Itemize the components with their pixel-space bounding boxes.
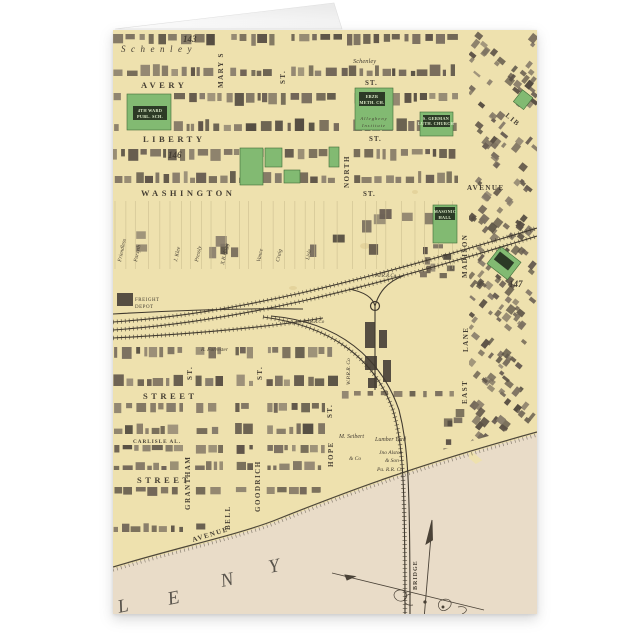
building (315, 378, 324, 386)
building (127, 379, 134, 387)
building (168, 347, 175, 354)
building (363, 34, 370, 44)
building (267, 379, 273, 386)
building (249, 445, 252, 449)
district-label: Schenley (121, 44, 197, 54)
building (220, 176, 227, 183)
building (263, 69, 272, 76)
building (349, 66, 356, 77)
building (161, 466, 166, 470)
building (393, 93, 400, 106)
building (447, 171, 452, 183)
building (315, 71, 321, 76)
building (168, 425, 179, 434)
building (147, 466, 152, 470)
building (449, 149, 456, 159)
building (191, 124, 194, 131)
building (137, 424, 143, 434)
building (240, 34, 247, 41)
seibert-label: M. Seibert (338, 434, 364, 440)
building (152, 526, 157, 533)
building (299, 34, 309, 41)
street-mary: MARY S (217, 52, 225, 88)
building (394, 391, 403, 397)
building (423, 247, 428, 254)
ward-school-label: PUBL. SCH. (137, 114, 163, 119)
building (113, 374, 123, 386)
building (268, 347, 271, 353)
park-block (329, 147, 339, 167)
building (284, 380, 290, 387)
building (392, 34, 400, 40)
building (298, 149, 305, 159)
building (158, 403, 163, 409)
building (174, 121, 183, 131)
building (236, 487, 246, 492)
building (196, 376, 202, 386)
building (246, 93, 255, 103)
building (320, 34, 330, 40)
building (113, 34, 123, 43)
building (196, 445, 206, 454)
building (218, 445, 223, 453)
building (141, 65, 151, 76)
building (240, 347, 246, 353)
building (406, 177, 414, 183)
building (288, 123, 291, 131)
building (309, 149, 318, 158)
building (163, 149, 166, 158)
wprr-label: W.P.R.R. Co (346, 358, 352, 385)
building (114, 466, 119, 470)
building (435, 391, 442, 396)
building (240, 70, 247, 77)
building (423, 391, 427, 397)
building (136, 347, 140, 354)
seibert-label: & Co (349, 456, 361, 462)
building (212, 427, 218, 434)
building (334, 123, 339, 131)
building (249, 381, 253, 386)
building (143, 445, 151, 451)
building (412, 34, 420, 44)
building (267, 445, 273, 451)
building (145, 176, 153, 183)
building (141, 149, 147, 155)
building (241, 403, 249, 409)
building (322, 403, 325, 412)
building (300, 487, 307, 494)
building (273, 466, 276, 471)
building (164, 174, 170, 183)
building (224, 125, 231, 131)
building (362, 220, 372, 232)
building (410, 391, 416, 397)
building (425, 34, 433, 41)
building (354, 175, 360, 183)
building (144, 523, 149, 532)
street-st-vert: ST. (279, 70, 287, 84)
building (189, 149, 194, 160)
building (374, 34, 380, 43)
freight-depot-building (117, 293, 133, 306)
building (289, 487, 299, 494)
carlisle-alley: CARLISLE AL. (133, 439, 181, 445)
building (235, 423, 242, 434)
street-st-abbrev: ST. (363, 190, 376, 198)
building (114, 93, 121, 100)
building (392, 68, 395, 76)
building (274, 403, 278, 413)
building (360, 68, 364, 76)
forrester-label: R. Forrester (200, 347, 229, 353)
building (319, 347, 325, 354)
building (454, 417, 463, 423)
building (279, 464, 289, 470)
building (297, 423, 301, 434)
building (318, 423, 325, 434)
building (291, 93, 300, 100)
building (374, 176, 381, 183)
building (168, 34, 177, 41)
building (308, 377, 314, 386)
building (456, 409, 465, 417)
building (153, 463, 159, 470)
building (433, 149, 436, 157)
building (430, 65, 441, 76)
bridge-label: BRIDGE (413, 560, 419, 590)
building (136, 403, 146, 412)
building (384, 34, 390, 42)
alston-label: Pa. R.R. Co (376, 467, 403, 473)
pa-rr-label: Pa.R.R.Co (374, 274, 397, 279)
building (126, 403, 132, 408)
street-madison-avenue: AVENUE (467, 184, 505, 192)
building (236, 347, 239, 355)
building (179, 527, 183, 532)
building (145, 428, 148, 434)
building (122, 347, 132, 359)
building (302, 93, 313, 103)
building (191, 67, 195, 76)
street-st-vert: ST. (256, 366, 264, 380)
building (197, 428, 208, 434)
card-product-preview[interactable]: Schenley 143 Schenley AVERY ST. MARY S S… (0, 0, 644, 644)
building (174, 93, 185, 99)
german-church-label: LUTH. CHURCH (418, 121, 455, 126)
building (144, 347, 147, 356)
building (328, 178, 335, 183)
map-image: Schenley 143 Schenley AVERY ST. MARY S S… (113, 30, 537, 614)
building (237, 445, 245, 454)
building (426, 175, 434, 183)
street-east: EAST (461, 380, 469, 404)
building (184, 171, 188, 183)
building (147, 487, 157, 496)
building (437, 173, 445, 183)
building (308, 347, 317, 357)
street-north: NORTH (343, 155, 351, 188)
building (231, 34, 237, 40)
building (207, 93, 215, 101)
building (446, 439, 451, 445)
building (162, 66, 168, 76)
building (189, 93, 197, 102)
masonic-hall-label: HALL (438, 215, 451, 220)
building (251, 34, 256, 46)
building (301, 403, 310, 412)
park-block (240, 148, 263, 185)
building (134, 445, 138, 451)
building (214, 462, 217, 470)
building (269, 34, 274, 45)
building (159, 526, 167, 532)
building (310, 177, 318, 184)
building (161, 487, 168, 493)
building (275, 121, 283, 131)
building (284, 445, 287, 450)
building (172, 487, 178, 494)
building (219, 461, 223, 470)
building (235, 403, 239, 412)
street-liberty: LIBERTY (143, 134, 205, 144)
street-label: STREET (143, 391, 198, 401)
building (281, 93, 286, 105)
building (140, 34, 145, 40)
building (397, 118, 407, 131)
building (234, 124, 242, 131)
building (153, 64, 160, 76)
building (289, 427, 293, 434)
building (152, 428, 160, 434)
building (292, 445, 296, 451)
building (231, 247, 238, 257)
plate-number-147: 147 (509, 279, 523, 289)
building (172, 173, 180, 183)
building (198, 121, 203, 131)
building (205, 119, 209, 131)
building (429, 93, 435, 99)
building (300, 172, 308, 183)
alston-label: & Son (385, 458, 399, 464)
building (197, 67, 200, 76)
building (125, 425, 133, 434)
building (268, 93, 277, 104)
building (121, 149, 125, 156)
building (303, 424, 314, 434)
building (310, 445, 318, 452)
building (272, 347, 278, 353)
street-washington: WASHINGTON (141, 188, 235, 198)
building (251, 70, 255, 76)
building (367, 71, 373, 76)
building (396, 177, 402, 183)
building (275, 173, 282, 183)
building (217, 93, 221, 101)
allegheny-institute-label: Institute (361, 123, 386, 128)
building (123, 445, 132, 449)
building (277, 429, 286, 434)
building (267, 403, 272, 412)
building (412, 149, 423, 155)
building (230, 68, 236, 76)
building (420, 93, 427, 100)
building (113, 149, 117, 160)
building (326, 68, 337, 76)
building (318, 465, 321, 470)
building (114, 527, 118, 532)
building (136, 462, 145, 470)
building (237, 462, 246, 470)
building (208, 403, 216, 412)
building (274, 445, 283, 453)
building (401, 149, 408, 156)
building (149, 34, 154, 44)
building (136, 487, 146, 492)
freight-depot-label: DEPOT (135, 305, 154, 310)
building (138, 379, 144, 386)
building (440, 273, 447, 278)
building (411, 71, 415, 76)
park-block (284, 170, 300, 183)
building (158, 34, 166, 44)
building (386, 175, 394, 183)
alston-label: Jno Alston (379, 450, 403, 456)
building (450, 391, 454, 397)
street-madison: MADISON (461, 234, 469, 278)
building (291, 34, 294, 41)
building (166, 378, 169, 386)
building (179, 403, 183, 412)
building (126, 34, 135, 39)
building (208, 445, 217, 453)
street-grantham: GRANTHAM (184, 456, 192, 510)
building (200, 93, 206, 99)
building (149, 347, 157, 357)
building (301, 445, 309, 453)
building (161, 426, 165, 434)
building (114, 429, 122, 434)
building (277, 487, 286, 492)
building (399, 70, 407, 76)
street-st-abbrev: ST. (365, 79, 378, 87)
allegheny-institute-label: Allegheny (359, 116, 387, 121)
greeting-card[interactable]: Schenley 143 Schenley AVERY ST. MARY S S… (113, 30, 537, 614)
building (354, 391, 361, 396)
building (174, 375, 183, 386)
building (448, 421, 453, 427)
building (390, 149, 396, 161)
building (447, 266, 455, 272)
building (210, 487, 220, 494)
building (279, 403, 287, 411)
building (247, 463, 253, 470)
building (293, 461, 302, 470)
building (257, 71, 262, 76)
building (213, 124, 219, 132)
building (316, 93, 325, 101)
building (131, 526, 141, 532)
building (171, 69, 178, 76)
card-fold (113, 0, 537, 30)
street-st-vert: ST. (186, 366, 194, 380)
building (362, 177, 372, 183)
building (342, 391, 349, 399)
building (380, 209, 392, 219)
building (196, 524, 205, 530)
building (196, 403, 203, 413)
building (275, 376, 283, 386)
building (327, 93, 336, 100)
building (327, 347, 332, 357)
building (247, 347, 253, 358)
building (443, 70, 446, 76)
building (451, 64, 455, 76)
building (114, 445, 119, 453)
building (282, 347, 290, 358)
building (171, 526, 175, 533)
building (190, 178, 195, 183)
building (375, 65, 379, 76)
building (298, 67, 304, 76)
building (152, 445, 163, 450)
building (237, 375, 245, 386)
building (295, 347, 304, 358)
building (368, 391, 374, 396)
building (227, 93, 233, 102)
building (123, 487, 132, 495)
building (439, 93, 448, 101)
building (342, 68, 348, 76)
building (196, 487, 205, 495)
lumber-yard-label: Lumber Yard (374, 437, 407, 443)
building (405, 93, 412, 103)
building (309, 65, 314, 76)
building (405, 34, 409, 41)
building (115, 487, 123, 494)
ward-school-label: 4TH WARD (138, 108, 162, 113)
building (206, 34, 215, 45)
plate-number-143: 143 (183, 34, 197, 44)
building (418, 171, 421, 183)
building (114, 124, 119, 131)
building (178, 347, 183, 353)
street-st-abbrev: ST. (369, 135, 382, 143)
building (210, 149, 220, 161)
pa-rr-label: Pa.R.R.Co (302, 320, 325, 325)
building (170, 461, 179, 470)
building (294, 375, 304, 386)
building (209, 176, 217, 183)
building (209, 247, 216, 258)
building (235, 93, 244, 106)
street-st-vert: ST. (326, 404, 334, 418)
building (383, 149, 386, 159)
building (224, 149, 233, 155)
building (195, 466, 205, 471)
building (115, 176, 123, 183)
building (150, 403, 156, 412)
street-lane: LANE (462, 327, 470, 352)
building (309, 123, 315, 131)
building (128, 149, 138, 161)
masonic-hall-label: MASONIC (434, 209, 456, 214)
building (243, 424, 253, 434)
building (206, 461, 212, 470)
building (312, 487, 321, 493)
building (156, 173, 160, 184)
building (267, 425, 273, 434)
